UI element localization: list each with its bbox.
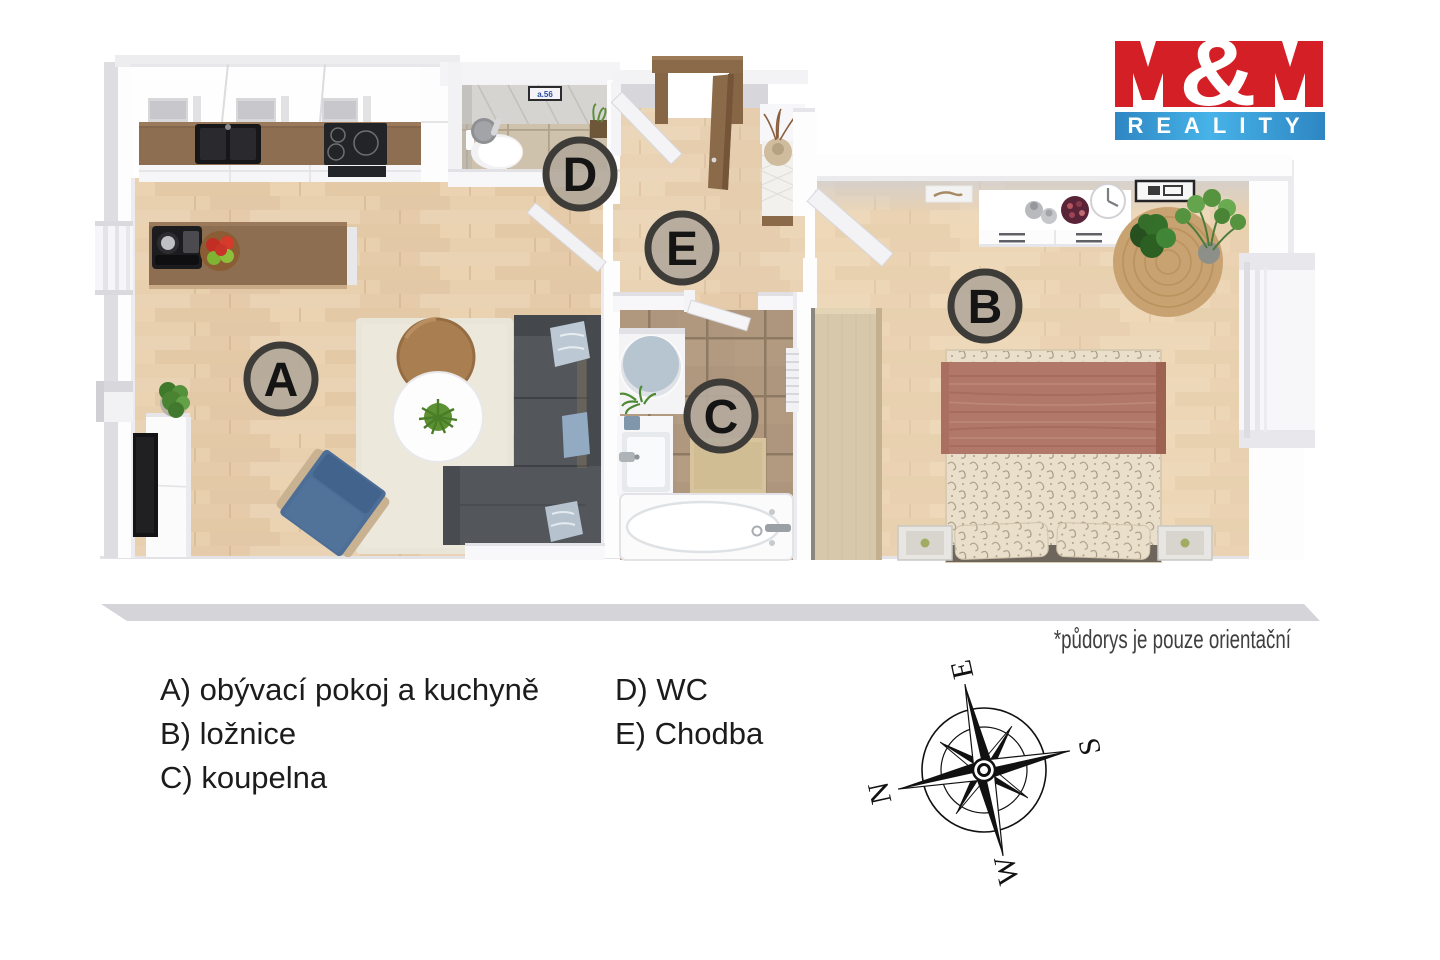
svg-text:A) obývací pokoj a kuchyně: A) obývací pokoj a kuchyně — [160, 672, 539, 707]
svg-text:E) Chodba: E) Chodba — [615, 716, 764, 751]
svg-text:C) koupelna: C) koupelna — [160, 760, 328, 795]
svg-text:A: A — [264, 354, 299, 407]
svg-text:E: E — [666, 223, 698, 276]
svg-text:B: B — [968, 281, 1003, 334]
svg-text:a.56: a.56 — [537, 90, 553, 99]
svg-text:D: D — [563, 149, 598, 202]
svg-text:REALITY: REALITY — [1127, 113, 1312, 138]
svg-text:C: C — [704, 391, 739, 444]
svg-text:*půdorys je pouze orientační: *půdorys je pouze orientační — [1054, 624, 1292, 654]
svg-text:D) WC: D) WC — [615, 672, 708, 707]
svg-text:&: & — [1179, 18, 1257, 125]
svg-text:B) ložnice: B) ložnice — [160, 716, 296, 751]
